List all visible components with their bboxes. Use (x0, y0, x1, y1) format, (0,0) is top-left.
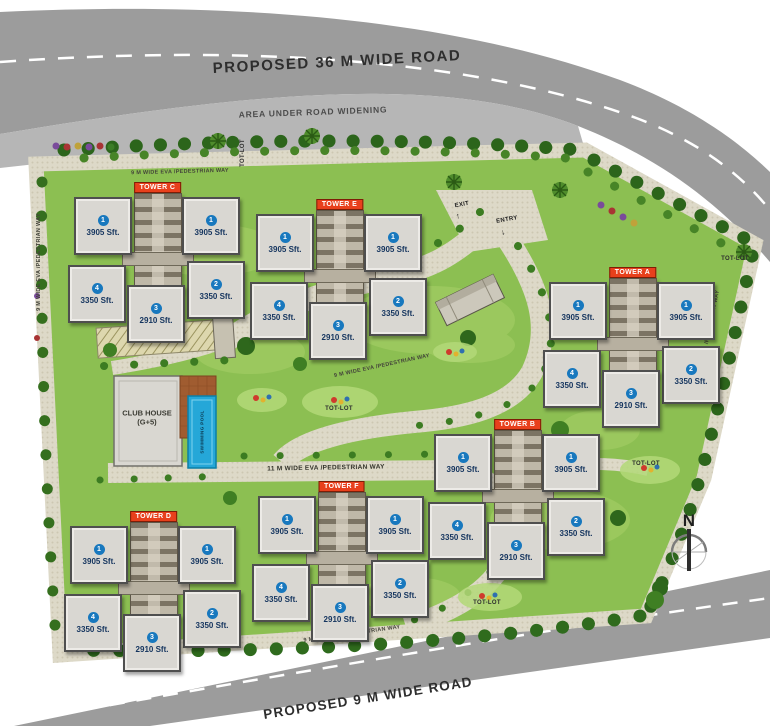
unit-block: 43350 Sft. (250, 282, 308, 340)
totlot-label-right: TOT-LOT (632, 461, 660, 467)
unit-size-label: 3905 Sft. (377, 245, 410, 254)
unit-number-badge: 2 (207, 608, 218, 619)
unit-block: 13905 Sft. (542, 434, 600, 492)
totlot-label-bottom: TOT-LOT (473, 600, 501, 606)
unit-number-badge: 1 (681, 300, 692, 311)
tower-a-label: TOWER A (609, 267, 656, 278)
swimming-pool-label: SWIMMING POOL (200, 410, 205, 453)
unit-block: 23350 Sft. (547, 498, 605, 556)
unit-size-label: 3905 Sft. (562, 313, 595, 322)
unit-number-badge: 2 (571, 516, 582, 527)
totlot-label-center: TOT-LOT (325, 406, 353, 412)
unit-size-label: 3905 Sft. (555, 465, 588, 474)
tower-c: TOWER C 13905 Sft. 13905 Sft. 43350 Sft.… (70, 183, 245, 345)
unit-number-badge: 2 (395, 578, 406, 589)
unit-size-label: 3350 Sft. (77, 625, 110, 634)
unit-block: 13905 Sft. (182, 197, 240, 255)
unit-block: 43350 Sft. (543, 350, 601, 408)
unit-size-label: 3905 Sft. (271, 527, 304, 536)
unit-number-badge: 1 (202, 544, 213, 555)
unit-block: 32910 Sft. (487, 522, 545, 580)
unit-number-badge: 1 (280, 232, 291, 243)
unit-block: 43350 Sft. (64, 594, 122, 652)
unit-size-label: 3905 Sft. (379, 527, 412, 536)
unit-size-label: 3905 Sft. (191, 557, 224, 566)
clubhouse-label: CLUB HOUSE (G+5) (112, 409, 182, 428)
totlot-label-right-top: TOT-LOT (721, 256, 749, 262)
unit-size-label: 3350 Sft. (441, 533, 474, 542)
unit-block: 13905 Sft. (70, 526, 128, 584)
unit-block: 32910 Sft. (123, 614, 181, 672)
unit-size-label: 3350 Sft. (384, 591, 417, 600)
unit-number-badge: 1 (573, 300, 584, 311)
north-label: N (683, 511, 696, 531)
tower-f: TOWER F 13905 Sft. 13905 Sft. 43350 Sft.… (254, 482, 429, 644)
unit-number-badge: 1 (390, 514, 401, 525)
unit-number-badge: 4 (88, 612, 99, 623)
tower-core-building (130, 522, 178, 622)
unit-block: 13905 Sft. (366, 496, 424, 554)
unit-block: 32910 Sft. (602, 370, 660, 428)
unit-size-label: 3905 Sft. (195, 228, 228, 237)
unit-size-label: 3905 Sft. (87, 228, 120, 237)
unit-size-label: 3905 Sft. (670, 313, 703, 322)
unit-block: 32910 Sft. (127, 285, 185, 343)
unit-block: 43350 Sft. (252, 564, 310, 622)
unit-number-badge: 1 (566, 452, 577, 463)
unit-block: 13905 Sft. (258, 496, 316, 554)
unit-number-badge: 4 (452, 520, 463, 531)
unit-size-label: 3350 Sft. (263, 313, 296, 322)
unit-size-label: 3350 Sft. (675, 377, 708, 386)
unit-size-label: 2910 Sft. (500, 553, 533, 562)
unit-block: 23350 Sft. (371, 560, 429, 618)
unit-number-badge: 1 (206, 215, 217, 226)
tower-d-label: TOWER D (130, 511, 178, 522)
unit-block: 23350 Sft. (187, 261, 245, 319)
unit-number-badge: 4 (92, 283, 103, 294)
unit-size-label: 2910 Sft. (140, 316, 173, 325)
tower-e: TOWER E 13905 Sft. 13905 Sft. 43350 Sft.… (252, 200, 427, 362)
unit-block: 23350 Sft. (662, 346, 720, 404)
tower-b-label: TOWER B (494, 419, 542, 430)
unit-block: 13905 Sft. (549, 282, 607, 340)
unit-size-label: 3905 Sft. (269, 245, 302, 254)
unit-number-badge: 4 (274, 300, 285, 311)
unit-block: 43350 Sft. (68, 265, 126, 323)
clubhouse-floors: (G+5) (137, 418, 156, 427)
unit-size-label: 3905 Sft. (447, 465, 480, 474)
tower-core-building (134, 193, 182, 293)
unit-number-badge: 1 (94, 544, 105, 555)
tower-e-label: TOWER E (316, 199, 363, 210)
unit-number-badge: 2 (211, 279, 222, 290)
tower-core-building (318, 492, 366, 592)
unit-number-badge: 3 (335, 602, 346, 613)
unit-size-label: 3350 Sft. (265, 595, 298, 604)
unit-size-label: 2910 Sft. (322, 333, 355, 342)
unit-number-badge: 3 (626, 388, 637, 399)
unit-number-badge: 1 (388, 232, 399, 243)
unit-block: 43350 Sft. (428, 502, 486, 560)
unit-number-badge: 1 (458, 452, 469, 463)
unit-number-badge: 3 (151, 303, 162, 314)
unit-size-label: 3350 Sft. (196, 621, 229, 630)
unit-block: 23350 Sft. (369, 278, 427, 336)
totlot-label-topleft: TOT-LOT (240, 139, 246, 167)
unit-block: 13905 Sft. (178, 526, 236, 584)
unit-size-label: 2910 Sft. (324, 615, 357, 624)
tower-d: TOWER D 13905 Sft. 13905 Sft. 43350 Sft.… (66, 512, 241, 674)
unit-block: 13905 Sft. (657, 282, 715, 340)
unit-size-label: 3350 Sft. (382, 309, 415, 318)
unit-size-label: 2910 Sft. (615, 401, 648, 410)
clubhouse-name: CLUB HOUSE (122, 409, 172, 418)
unit-block: 32910 Sft. (311, 584, 369, 642)
unit-block: 32910 Sft. (309, 302, 367, 360)
unit-number-badge: 1 (98, 215, 109, 226)
unit-number-badge: 4 (567, 368, 578, 379)
unit-number-badge: 3 (511, 540, 522, 551)
unit-block: 13905 Sft. (256, 214, 314, 272)
tower-core-building (609, 278, 657, 378)
unit-number-badge: 3 (333, 320, 344, 331)
unit-size-label: 3350 Sft. (200, 292, 233, 301)
unit-number-badge: 1 (282, 514, 293, 525)
tower-f-label: TOWER F (318, 481, 365, 492)
site-master-plan: PROPOSED 36 M WIDE ROAD AREA UNDER ROAD … (0, 0, 770, 726)
unit-block: 13905 Sft. (434, 434, 492, 492)
tower-c-label: TOWER C (134, 182, 182, 193)
unit-number-badge: 2 (393, 296, 404, 307)
unit-number-badge: 3 (147, 632, 158, 643)
unit-block: 13905 Sft. (74, 197, 132, 255)
unit-size-label: 3350 Sft. (81, 296, 114, 305)
unit-block: 23350 Sft. (183, 590, 241, 648)
unit-size-label: 3350 Sft. (556, 381, 589, 390)
tower-b: TOWER B 13905 Sft. 13905 Sft. 43350 Sft.… (430, 420, 605, 582)
unit-block: 13905 Sft. (364, 214, 422, 272)
eva-way-label-left: 9 M WIDE EVA /PEDESTRIAN WAY (36, 213, 42, 311)
unit-size-label: 3350 Sft. (560, 529, 593, 538)
unit-size-label: 2910 Sft. (136, 645, 169, 654)
unit-number-badge: 4 (276, 582, 287, 593)
tower-core-building (316, 210, 364, 310)
tower-a: TOWER A 13905 Sft. 13905 Sft. 43350 Sft.… (545, 268, 720, 430)
unit-size-label: 3905 Sft. (83, 557, 116, 566)
tower-core-building (494, 430, 542, 530)
unit-number-badge: 2 (686, 364, 697, 375)
